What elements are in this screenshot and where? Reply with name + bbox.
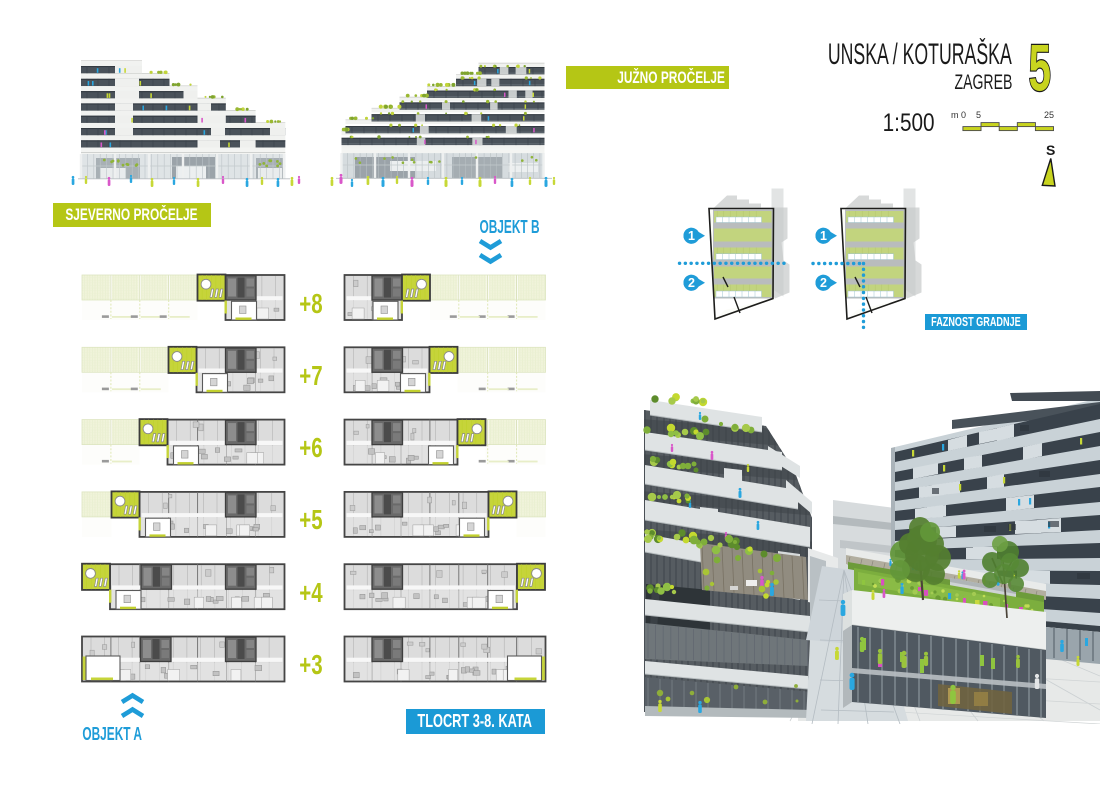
- svg-text:5: 5: [1029, 36, 1051, 96]
- svg-text:2: 2: [688, 276, 695, 290]
- svg-text:2: 2: [820, 276, 827, 290]
- svg-text:25: 25: [1044, 110, 1054, 120]
- svg-text:1: 1: [688, 229, 695, 243]
- svg-text:5: 5: [976, 110, 981, 120]
- svg-text:1: 1: [820, 229, 827, 243]
- svg-text:S: S: [1046, 142, 1055, 158]
- svg-text:m 0: m 0: [951, 110, 966, 120]
